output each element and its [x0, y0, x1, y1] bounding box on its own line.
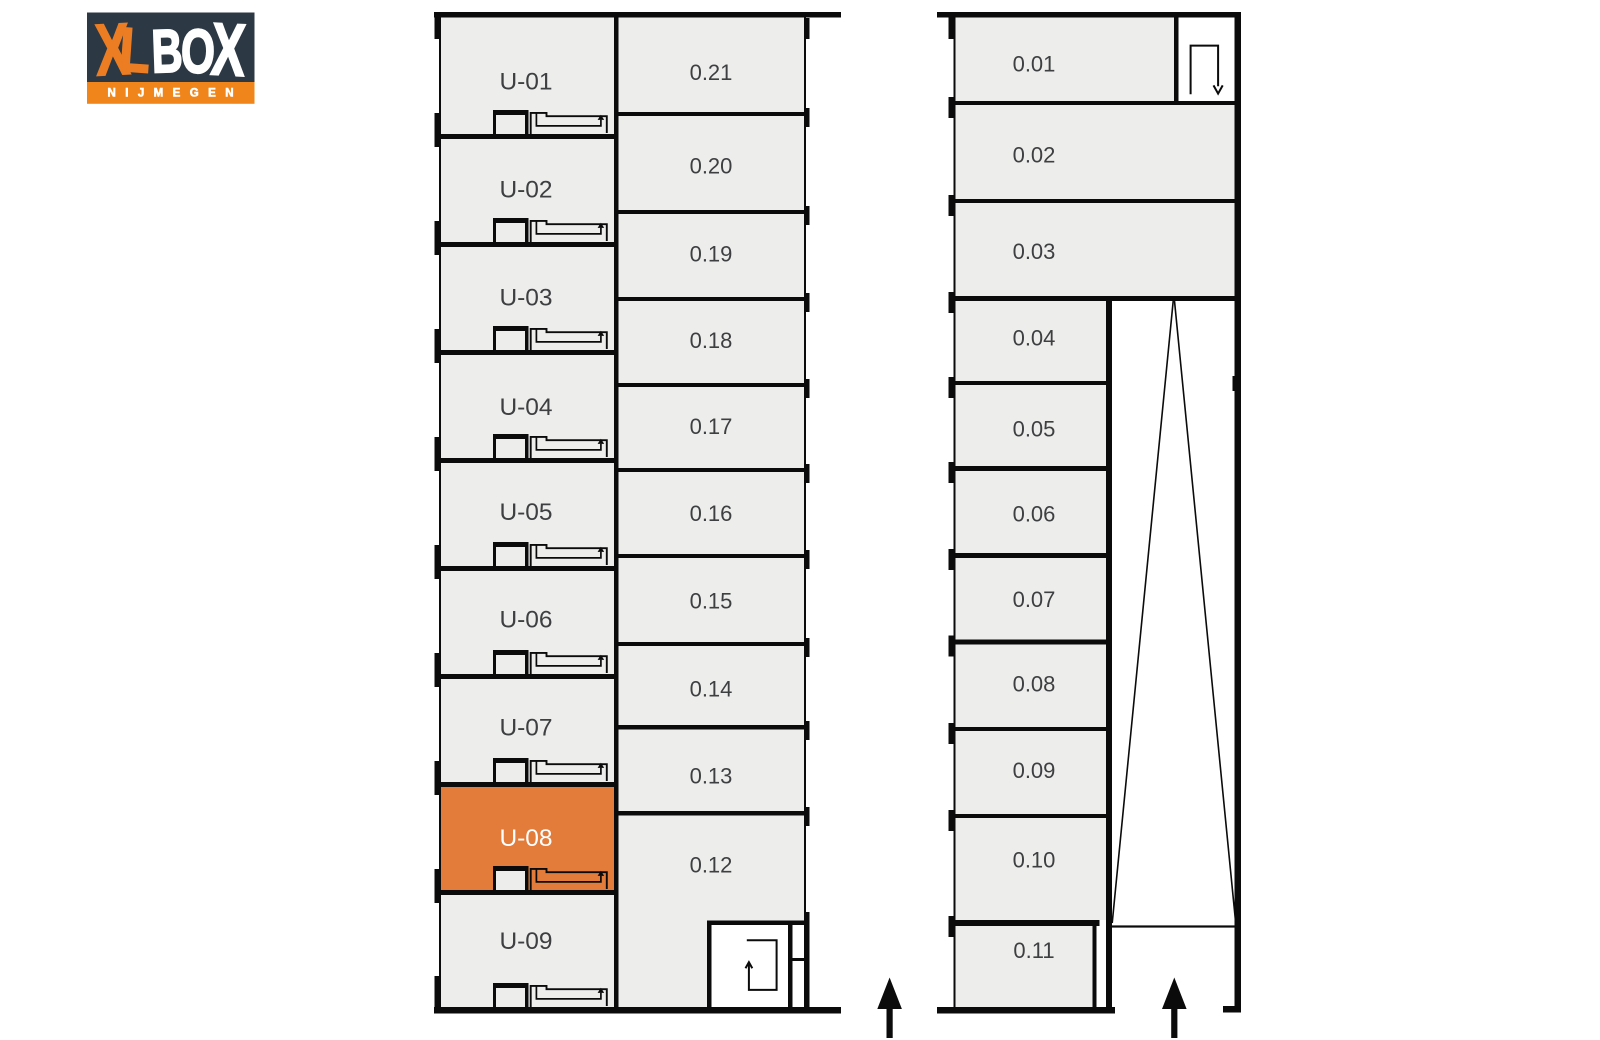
svg-text:0.14: 0.14	[690, 676, 733, 701]
svg-text:0.10: 0.10	[1013, 847, 1056, 872]
svg-text:U-05: U-05	[499, 499, 552, 526]
svg-text:B: B	[150, 16, 183, 85]
svg-text:X: X	[209, 7, 247, 92]
svg-text:U-03: U-03	[499, 285, 552, 312]
svg-text:U-02: U-02	[499, 177, 552, 204]
svg-text:U-04: U-04	[499, 394, 552, 421]
svg-text:0.16: 0.16	[690, 501, 733, 526]
svg-text:0.21: 0.21	[690, 60, 733, 85]
svg-text:0.18: 0.18	[690, 328, 733, 353]
svg-text:U-08: U-08	[499, 825, 552, 852]
svg-text:0.09: 0.09	[1013, 758, 1056, 783]
svg-text:0.04: 0.04	[1013, 325, 1056, 350]
svg-text:0.08: 0.08	[1013, 672, 1056, 697]
svg-text:0.01: 0.01	[1013, 51, 1056, 76]
svg-text:0.20: 0.20	[690, 154, 733, 179]
svg-text:U-07: U-07	[499, 715, 552, 742]
svg-text:L: L	[117, 15, 153, 86]
svg-text:0.06: 0.06	[1013, 501, 1056, 526]
svg-text:0.02: 0.02	[1013, 143, 1056, 168]
svg-text:0.13: 0.13	[690, 763, 733, 788]
svg-text:0.03: 0.03	[1013, 239, 1056, 264]
svg-text:0.15: 0.15	[690, 588, 733, 613]
svg-text:0.11: 0.11	[1013, 938, 1054, 963]
svg-text:0.05: 0.05	[1013, 417, 1056, 442]
svg-text:U-06: U-06	[499, 607, 552, 634]
svg-text:U-09: U-09	[499, 928, 552, 955]
svg-text:0.17: 0.17	[690, 414, 733, 439]
svg-text:U-01: U-01	[499, 68, 552, 95]
svg-text:0.07: 0.07	[1013, 587, 1056, 612]
svg-text:0.12: 0.12	[690, 852, 733, 877]
svg-text:0.19: 0.19	[690, 242, 733, 267]
